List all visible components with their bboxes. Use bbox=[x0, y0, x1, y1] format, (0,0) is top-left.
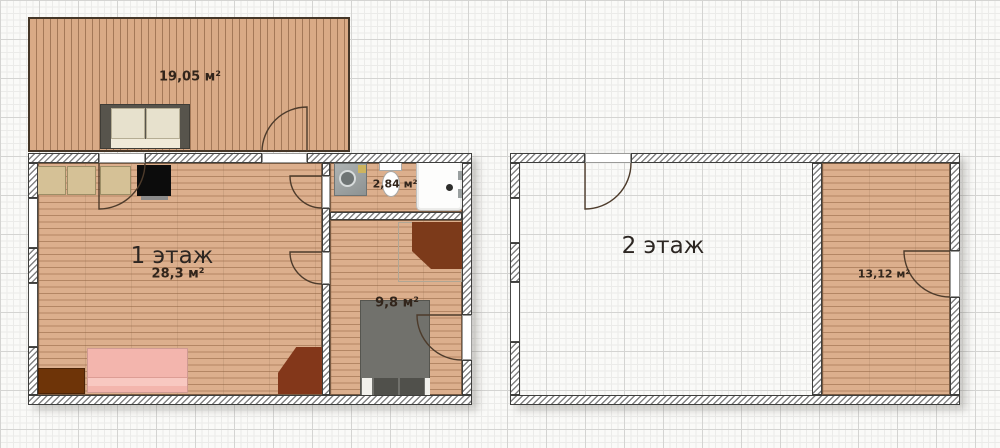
wall-segment bbox=[462, 163, 472, 315]
sofa-cushion bbox=[111, 108, 145, 139]
wall-segment bbox=[28, 395, 472, 405]
kitchen-cabinet bbox=[36, 166, 66, 195]
window bbox=[28, 283, 38, 347]
window bbox=[510, 198, 520, 243]
sofa-seat-front bbox=[111, 139, 180, 148]
bed-leg bbox=[425, 378, 430, 396]
window bbox=[510, 282, 520, 342]
washing-machine-door bbox=[339, 170, 356, 187]
door-opening bbox=[99, 153, 145, 163]
kitchen-cabinet bbox=[100, 166, 131, 195]
window bbox=[28, 198, 38, 248]
bedroom-area-label: 9,8 м² bbox=[375, 296, 419, 311]
sofa-cushion bbox=[146, 108, 180, 139]
shower-drain bbox=[446, 184, 453, 191]
toilet-tank bbox=[379, 162, 402, 171]
wall-segment bbox=[330, 212, 462, 220]
floor1-title: 1 этаж bbox=[131, 243, 214, 269]
bed-leg bbox=[362, 378, 372, 396]
wall-segment bbox=[28, 163, 38, 198]
floor2-room-area-label: 13,12 м² bbox=[858, 268, 910, 281]
terrace-sofa bbox=[100, 104, 190, 149]
wall-segment bbox=[510, 243, 520, 282]
terrace-area-label: 19,05 м² bbox=[159, 70, 221, 85]
wall-segment bbox=[28, 153, 99, 163]
bathroom-area-label: 2,84 м² bbox=[373, 178, 418, 191]
bed-pillow bbox=[400, 378, 424, 396]
floorplan-canvas: 19,05 м² 1 этаж 28,3 м² 2,84 м² 9,8 м² 2… bbox=[0, 0, 1000, 448]
stove-base bbox=[141, 196, 168, 200]
wall-segment bbox=[322, 163, 330, 176]
door-opening bbox=[462, 315, 472, 360]
pink-sofa-seat bbox=[88, 377, 187, 386]
double-bed bbox=[360, 300, 430, 397]
wall-segment bbox=[812, 163, 822, 395]
wall-segment bbox=[631, 153, 960, 163]
pink-sofa bbox=[87, 348, 188, 393]
stove bbox=[137, 165, 171, 196]
wall-segment bbox=[950, 163, 960, 251]
wall-segment bbox=[462, 360, 472, 395]
wall-segment bbox=[28, 347, 38, 395]
door-opening bbox=[322, 176, 330, 208]
kitchen-cabinet bbox=[67, 166, 96, 195]
wall-segment bbox=[510, 342, 520, 395]
wall-segment bbox=[510, 163, 520, 198]
floor2-title: 2 этаж bbox=[622, 233, 705, 259]
door-opening bbox=[322, 252, 330, 284]
wall-segment bbox=[28, 248, 38, 283]
wall-segment bbox=[307, 153, 472, 163]
door-opening bbox=[262, 153, 307, 163]
wall-segment bbox=[510, 395, 960, 405]
detergent-box bbox=[358, 165, 366, 173]
wall-segment bbox=[322, 208, 330, 252]
wall-segment bbox=[510, 153, 585, 163]
brown-cabinet bbox=[38, 368, 85, 394]
floor1-area-label: 28,3 м² bbox=[152, 267, 205, 282]
shower-tray bbox=[416, 159, 463, 211]
wall-segment bbox=[145, 153, 262, 163]
wall-segment bbox=[322, 284, 330, 395]
door-opening bbox=[950, 251, 960, 297]
washing-machine bbox=[334, 163, 367, 196]
bed-pillow bbox=[374, 378, 398, 396]
wall-segment bbox=[950, 297, 960, 395]
door-opening bbox=[585, 153, 631, 163]
